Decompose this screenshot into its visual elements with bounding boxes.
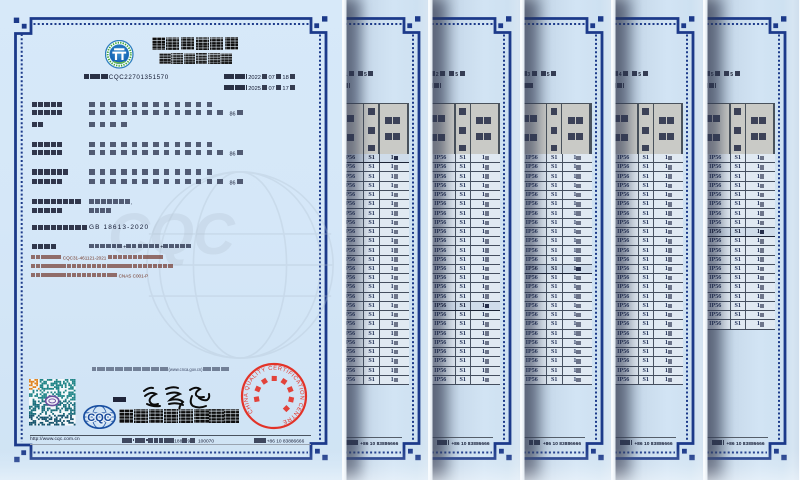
svg-text:CHINA QUALITY CERTIFICATION CE: CHINA QUALITY CERTIFICATION CENTRE — [240, 362, 308, 430]
svg-text:CQC: CQC — [87, 412, 112, 424]
